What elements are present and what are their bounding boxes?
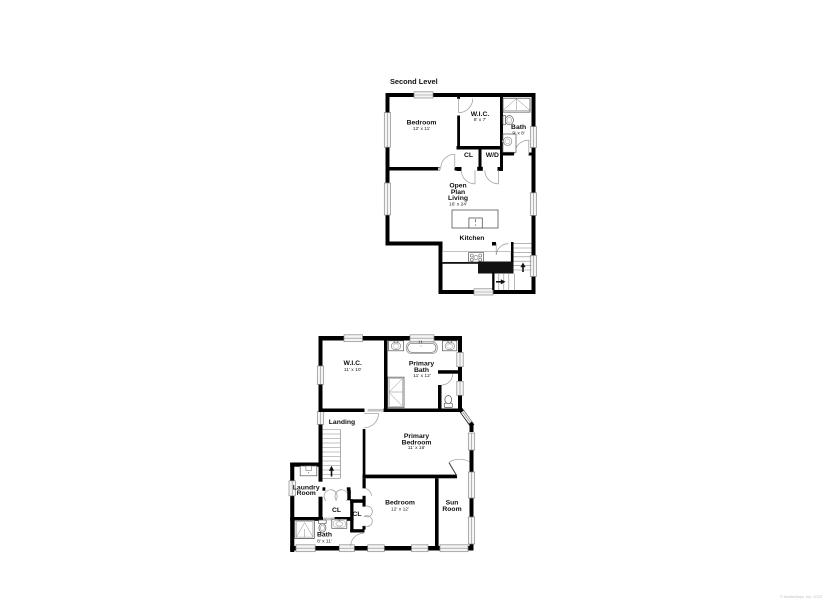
svg-text:Living: Living xyxy=(448,195,468,202)
svg-text:Bath: Bath xyxy=(317,532,332,539)
svg-text:16' x 24': 16' x 24' xyxy=(449,202,467,208)
svg-text:11' x 10': 11' x 10' xyxy=(344,367,362,373)
svg-text:Bedroom: Bedroom xyxy=(407,120,437,127)
svg-text:CL: CL xyxy=(332,507,341,514)
svg-text:Room: Room xyxy=(442,506,461,513)
svg-text:11' x 16': 11' x 16' xyxy=(408,445,426,451)
svg-text:W.I.C.: W.I.C. xyxy=(343,360,362,367)
svg-text:Bedroom: Bedroom xyxy=(385,500,415,507)
svg-text:12' x 11': 12' x 11' xyxy=(413,126,431,132)
svg-text:Bath: Bath xyxy=(414,367,429,374)
svg-text:Kitchen: Kitchen xyxy=(460,235,485,242)
svg-text:Landing: Landing xyxy=(329,419,355,426)
svg-text:CL: CL xyxy=(464,152,473,159)
svg-text:W/D: W/D xyxy=(486,152,499,159)
svg-text:12' x 12': 12' x 12' xyxy=(391,507,409,513)
svg-text:Room: Room xyxy=(297,490,316,497)
svg-text:Second Level: Second Level xyxy=(390,77,438,86)
svg-text:8' x 7': 8' x 7' xyxy=(474,117,487,123)
svg-text:Bath: Bath xyxy=(511,124,526,131)
svg-text:CL: CL xyxy=(352,511,361,518)
svg-text:W.I.C.: W.I.C. xyxy=(471,111,490,118)
svg-text:9' x 8': 9' x 8' xyxy=(512,131,525,137)
svg-text:© InsideMaps, Inc. 2023: © InsideMaps, Inc. 2023 xyxy=(780,594,822,599)
svg-text:11' x 12': 11' x 12' xyxy=(413,373,431,379)
svg-text:8' x 11': 8' x 11' xyxy=(317,538,332,544)
